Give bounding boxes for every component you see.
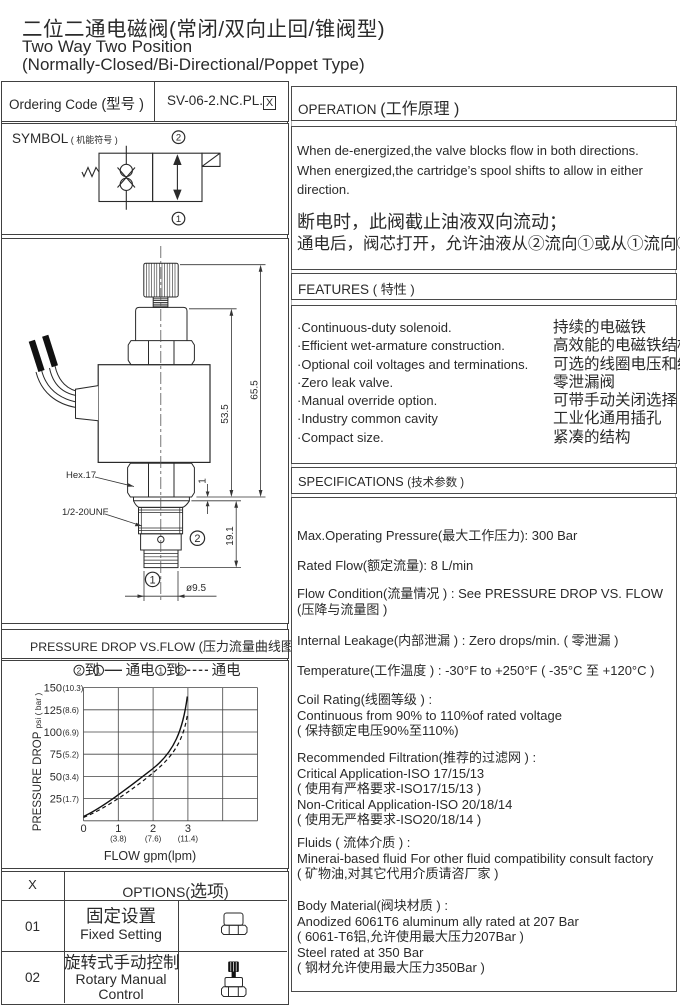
svg-text:(10.3): (10.3) [63,684,84,693]
svg-text:(11.4): (11.4) [178,835,199,844]
svg-text:75: 75 [50,749,62,761]
svg-text:ø9.5: ø9.5 [186,583,206,594]
svg-text:1/2-20UNF: 1/2-20UNF [62,507,109,518]
svg-text:(5.2): (5.2) [63,751,80,760]
svg-text:25: 25 [50,794,62,806]
svg-text:(3.4): (3.4) [63,773,80,782]
svg-text:到: 到 [166,662,181,679]
svg-text:0: 0 [80,823,86,835]
svg-text:(8.6): (8.6) [63,706,80,715]
svg-text:100: 100 [44,727,62,739]
svg-text:2: 2 [194,533,200,545]
svg-text:1: 1 [158,665,163,675]
svg-text:2: 2 [176,133,181,144]
svg-text:53.5: 53.5 [220,404,231,424]
svg-text:通电: 通电 [126,662,155,679]
svg-text:FLOW gpm(lpm): FLOW gpm(lpm) [104,849,196,863]
svg-text:2: 2 [150,823,156,835]
svg-text:1: 1 [198,478,209,484]
svg-text:65.5: 65.5 [250,380,261,400]
svg-text:(3.8): (3.8) [110,835,127,844]
svg-text:PRESSURE DROP psi ( bar ): PRESSURE DROP psi ( bar ) [32,693,44,832]
svg-text:到: 到 [85,662,100,679]
svg-text:1: 1 [150,574,156,586]
svg-text:(6.9): (6.9) [63,728,80,737]
svg-text:19.1: 19.1 [225,526,236,546]
svg-text:(7.6): (7.6) [145,835,162,844]
svg-text:1: 1 [176,214,181,225]
svg-text:(1.7): (1.7) [63,795,80,804]
svg-text:Hex.17: Hex.17 [66,470,96,481]
svg-text:150: 150 [44,683,62,695]
svg-text:3: 3 [185,823,191,835]
svg-text:2: 2 [77,665,82,675]
svg-text:125: 125 [44,705,62,717]
svg-text:通电: 通电 [212,662,241,679]
svg-text:1: 1 [115,823,121,835]
svg-text:50: 50 [50,771,62,783]
